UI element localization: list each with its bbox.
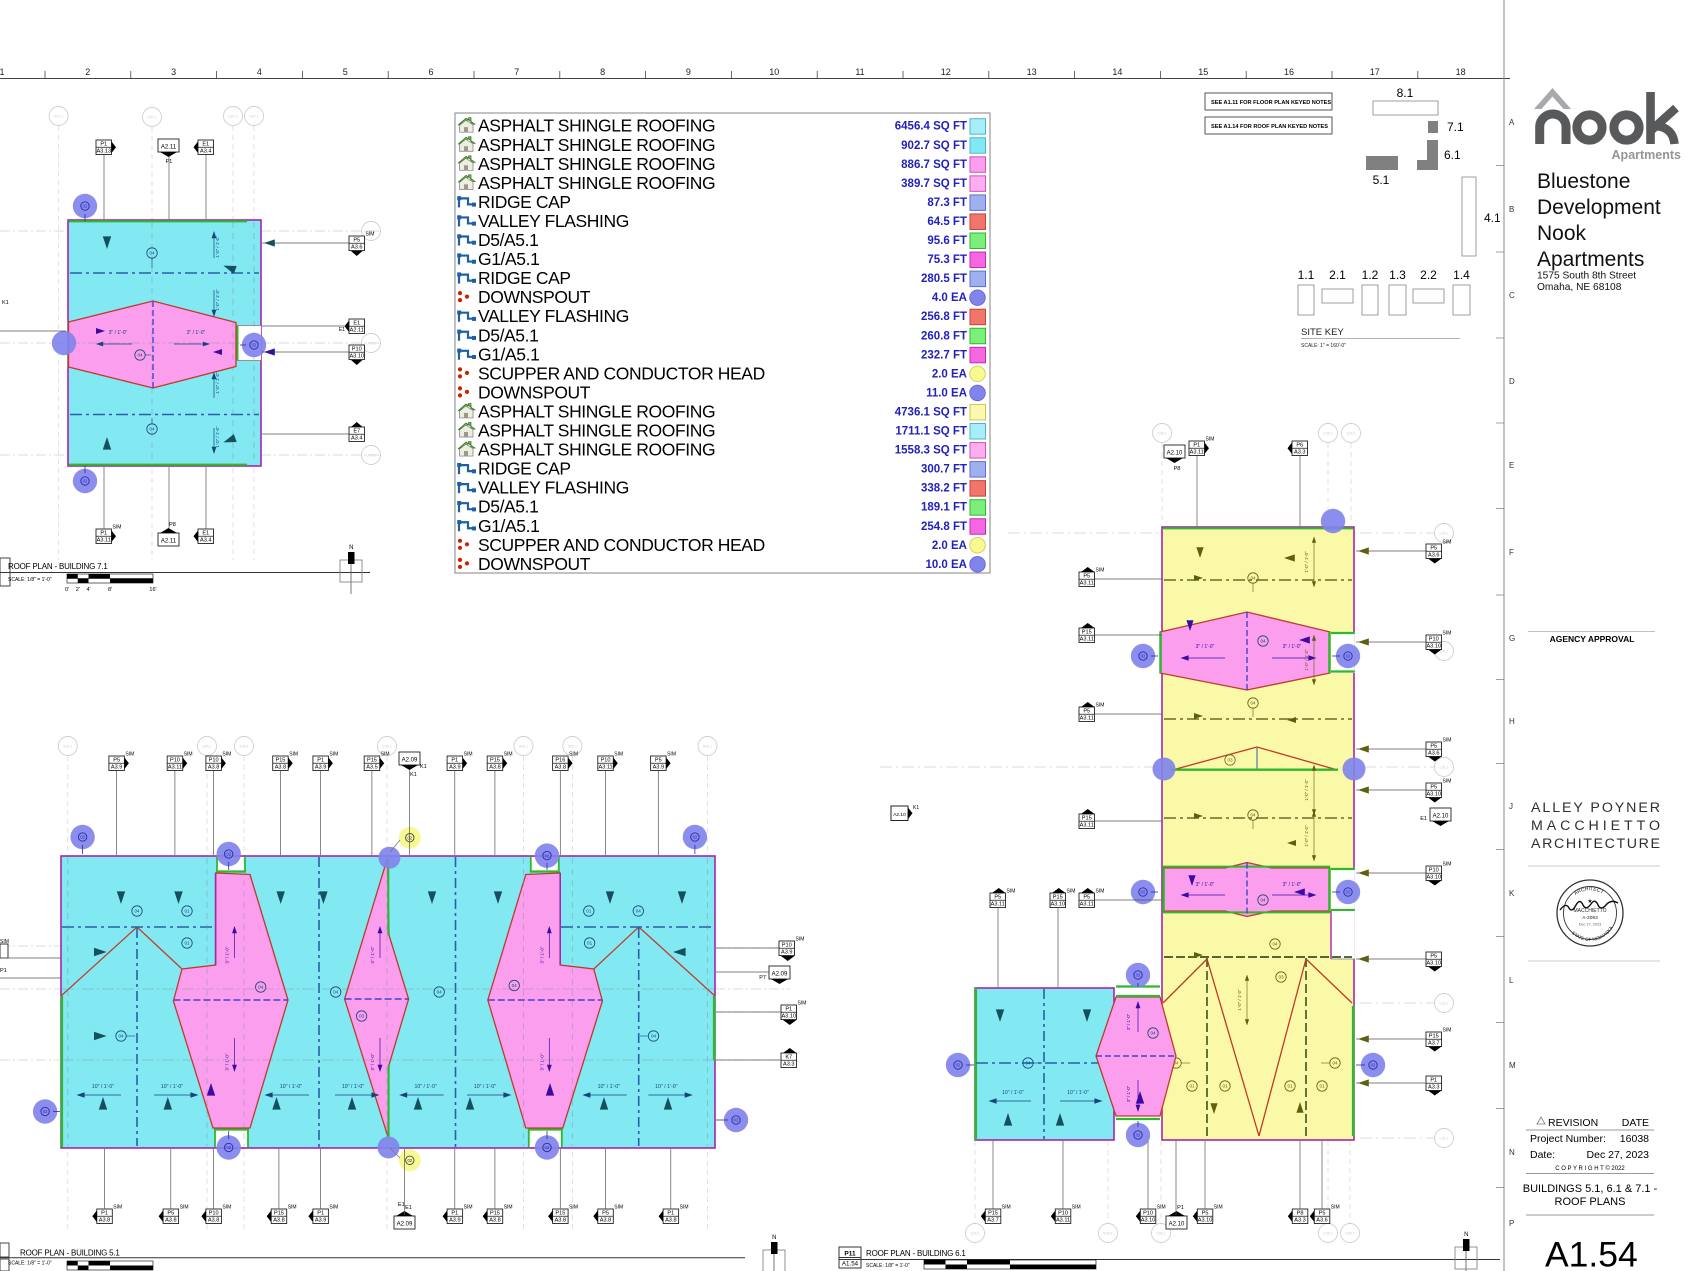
svg-text:1575 South 8th Street: 1575 South 8th Street	[1537, 271, 1636, 282]
svg-text:P15: P15	[1082, 630, 1092, 636]
svg-text:A3.9: A3.9	[449, 765, 461, 771]
svg-text:SCUPPER AND CONDUCTOR HEAD: SCUPPER AND CONDUCTOR HEAD	[478, 535, 765, 555]
svg-text:64.5 FT: 64.5 FT	[927, 216, 967, 228]
svg-text:1.3: 1.3	[1389, 268, 1406, 282]
svg-text:01: 01	[1189, 1084, 1195, 1089]
svg-text:N: N	[1509, 1148, 1515, 1157]
svg-text:A3.7: A3.7	[987, 1218, 999, 1224]
svg-text:SIM: SIM	[667, 752, 676, 758]
svg-text:S05.1: S05.1	[382, 745, 391, 749]
svg-text:S06.1: S06.1	[1103, 1232, 1112, 1236]
svg-text:1'-0" / 1'-0": 1'-0" / 1'-0"	[215, 289, 220, 311]
svg-text:260.8 FT: 260.8 FT	[921, 330, 967, 342]
svg-text:A3.3: A3.3	[1428, 1085, 1440, 1091]
svg-text:K1: K1	[420, 764, 427, 770]
svg-text:8': 8'	[108, 587, 112, 593]
svg-text:SIM: SIM	[1096, 568, 1105, 574]
svg-text:P5: P5	[1083, 574, 1090, 580]
svg-text:D: D	[1509, 377, 1515, 386]
svg-text:S06.1: S06.1	[1345, 1232, 1354, 1236]
svg-text:A3.4: A3.4	[200, 538, 212, 544]
svg-text:P5: P5	[1083, 709, 1090, 715]
svg-text:A2.11: A2.11	[161, 539, 177, 545]
svg-text:A2.09: A2.09	[772, 972, 788, 978]
svg-text:A1.54: A1.54	[1545, 1235, 1638, 1271]
svg-text:75.3 FT: 75.3 FT	[927, 254, 967, 266]
svg-text:A3.7: A3.7	[1428, 1041, 1440, 1047]
svg-text:SIM: SIM	[1002, 1205, 1011, 1211]
svg-text:K1: K1	[913, 805, 919, 811]
svg-text:REVISION: REVISION	[1548, 1117, 1598, 1129]
svg-text:A3.5: A3.5	[366, 765, 378, 771]
svg-text:A3.10: A3.10	[1050, 902, 1065, 908]
svg-text:01: 01	[586, 909, 592, 914]
svg-text:P15: P15	[490, 758, 500, 764]
svg-text:SIM: SIM	[464, 1205, 473, 1211]
svg-text:01: 01	[1222, 1084, 1228, 1089]
svg-text:A3.10: A3.10	[1426, 792, 1441, 798]
svg-text:P10: P10	[1143, 1211, 1153, 1217]
svg-text:300.7 FT: 300.7 FT	[921, 464, 967, 476]
svg-text:10" / 1'-0": 10" / 1'-0"	[414, 1084, 436, 1090]
svg-text:A3.11: A3.11	[598, 765, 612, 771]
svg-text:17: 17	[1370, 67, 1380, 77]
svg-text:P15: P15	[1082, 816, 1092, 822]
svg-text:P5: P5	[1430, 546, 1437, 552]
svg-text:3" / 1'-0": 3" / 1'-0"	[187, 330, 206, 336]
svg-text:03: 03	[1278, 975, 1284, 980]
svg-text:SIM: SIM	[464, 752, 473, 758]
svg-text:S05.1: S05.1	[63, 745, 72, 749]
svg-text:U07.1: U07.1	[366, 342, 376, 346]
svg-text:S06.1: S06.1	[1323, 1232, 1332, 1236]
svg-text:SIM: SIM	[1443, 738, 1452, 744]
svg-text:04: 04	[258, 985, 264, 990]
svg-text:A3.9: A3.9	[653, 765, 665, 771]
svg-text:3" / 1'-0": 3" / 1'-0"	[109, 330, 128, 336]
svg-text:A3.10: A3.10	[349, 354, 364, 360]
svg-text:87.3 FT: 87.3 FT	[927, 197, 967, 209]
svg-text:02: 02	[1141, 890, 1146, 895]
svg-text:02: 02	[1371, 1063, 1376, 1068]
svg-text:SIM: SIM	[288, 1205, 297, 1211]
svg-text:U07.1: U07.1	[366, 454, 376, 458]
svg-text:04: 04	[333, 990, 339, 995]
svg-text:D5/A5.1: D5/A5.1	[478, 325, 538, 345]
svg-text:P8: P8	[1297, 1211, 1304, 1217]
svg-text:SITE KEY: SITE KEY	[1301, 327, 1344, 338]
svg-text:5.1: 5.1	[1373, 173, 1390, 187]
svg-text:04: 04	[1260, 639, 1266, 644]
svg-text:1'-0" / 1'-0": 1'-0" / 1'-0"	[215, 236, 220, 258]
svg-text:Apartments: Apartments	[1537, 248, 1644, 271]
svg-text:ASPHALT SHINGLE ROOFING: ASPHALT SHINGLE ROOFING	[478, 154, 715, 174]
svg-text:K7: K7	[785, 1055, 792, 1061]
svg-text:SIM: SIM	[1096, 703, 1105, 709]
svg-text:10" / 1'-0": 10" / 1'-0"	[92, 1084, 114, 1090]
svg-text:10" / 1'-0": 10" / 1'-0"	[474, 1084, 496, 1090]
svg-text:P5: P5	[167, 1211, 174, 1217]
svg-text:04: 04	[437, 990, 443, 995]
svg-text:A3.9: A3.9	[315, 765, 327, 771]
svg-text:P5: P5	[113, 758, 120, 764]
svg-text:BUILDINGS 5.1, 6.1 & 7.1 -: BUILDINGS 5.1, 6.1 & 7.1 -	[1523, 1183, 1658, 1195]
svg-text:04: 04	[651, 1034, 657, 1039]
svg-text:S05.1: S05.1	[519, 745, 528, 749]
svg-text:RIDGE CAP: RIDGE CAP	[478, 268, 571, 288]
svg-text:SIM: SIM	[614, 1205, 623, 1211]
svg-text:P16: P16	[555, 758, 565, 764]
svg-text:Development: Development	[1537, 196, 1661, 219]
svg-text:SIM: SIM	[1007, 889, 1016, 895]
svg-text:P10: P10	[209, 1211, 219, 1217]
svg-text:SIM: SIM	[113, 1205, 122, 1211]
svg-text:N: N	[349, 545, 353, 551]
svg-text:P5: P5	[602, 1211, 609, 1217]
svg-text:01: 01	[587, 941, 593, 946]
svg-text:3" / 1'-0": 3" / 1'-0"	[1196, 882, 1215, 888]
svg-text:3" / 1'-0": 3" / 1'-0"	[1283, 882, 1302, 888]
svg-text:ROOF PLAN - BUILDING 7.1: ROOF PLAN - BUILDING 7.1	[8, 562, 108, 571]
svg-text:P1: P1	[100, 142, 107, 148]
svg-text:02: 02	[1141, 654, 1146, 659]
svg-text:04: 04	[1250, 813, 1256, 818]
svg-text:SIM: SIM	[180, 1205, 189, 1211]
svg-text:03: 03	[359, 1014, 365, 1019]
svg-text:8.1: 8.1	[1397, 86, 1414, 100]
svg-text:02: 02	[545, 853, 550, 858]
svg-text:P15: P15	[988, 1211, 998, 1217]
svg-text:S05.1: S05.1	[202, 745, 211, 749]
svg-text:P5: P5	[655, 758, 662, 764]
svg-text:3" / 1'-0": 3" / 1'-0"	[539, 946, 544, 964]
svg-text:7: 7	[514, 67, 519, 77]
svg-text:ASPHALT SHINGLE ROOFING: ASPHALT SHINGLE ROOFING	[478, 135, 715, 155]
svg-text:01: 01	[1319, 1084, 1325, 1089]
svg-text:04: 04	[636, 909, 642, 914]
svg-text:15: 15	[1198, 67, 1208, 77]
svg-text:A2.10: A2.10	[893, 812, 906, 818]
svg-text:S05.1: S05.1	[703, 745, 712, 749]
svg-text:1558.3 SQ FT: 1558.3 SQ FT	[895, 445, 967, 457]
svg-text:6456.4 SQ FT: 6456.4 SQ FT	[895, 121, 967, 133]
svg-text:SCALE: 1/8" = 1'-0": SCALE: 1/8" = 1'-0"	[866, 1263, 910, 1269]
svg-text:P10: P10	[601, 758, 611, 764]
svg-text:A3.11: A3.11	[1190, 450, 1204, 456]
svg-text:P1: P1	[1430, 1078, 1437, 1084]
svg-text:02: 02	[226, 852, 231, 857]
svg-text:SIM: SIM	[113, 525, 122, 531]
svg-text:N: N	[1464, 1232, 1468, 1238]
svg-text:S07.1: S07.1	[228, 115, 237, 119]
svg-text:A2.09: A2.09	[397, 1222, 413, 1228]
svg-text:A3.11: A3.11	[1080, 823, 1094, 829]
svg-text:SIM: SIM	[504, 1205, 513, 1211]
svg-text:A3.11: A3.11	[1056, 1218, 1070, 1224]
svg-text:N: N	[772, 1235, 776, 1241]
svg-text:Apartments: Apartments	[1612, 148, 1682, 162]
svg-text:4.0 EA: 4.0 EA	[932, 292, 967, 304]
svg-text:1'-0" / 1'-0": 1'-0" / 1'-0"	[1304, 779, 1309, 801]
svg-text:A3.11: A3.11	[1080, 581, 1094, 587]
svg-text:P1: P1	[317, 1211, 324, 1217]
svg-text:04: 04	[149, 251, 155, 256]
svg-text:12: 12	[941, 67, 951, 77]
svg-text:SIM: SIM	[680, 1205, 689, 1211]
svg-text:ARCHITECTURE: ARCHITECTURE	[1531, 836, 1660, 852]
svg-text:P5: P5	[353, 238, 360, 244]
svg-text:A3.11: A3.11	[1080, 637, 1094, 643]
svg-text:A3.10: A3.10	[1426, 644, 1441, 650]
svg-text:10: 10	[769, 67, 779, 77]
svg-text:SIM: SIM	[796, 937, 805, 943]
svg-text:10.0 EA: 10.0 EA	[925, 559, 967, 571]
svg-text:S07.1: S07.1	[54, 115, 63, 119]
svg-text:P1: P1	[1177, 1205, 1184, 1211]
svg-text:A3.8: A3.8	[275, 765, 287, 771]
svg-text:S06.1: S06.1	[1346, 432, 1355, 436]
svg-text:A3.8: A3.8	[273, 1218, 285, 1224]
svg-text:P8: P8	[1174, 466, 1181, 472]
svg-text:886.7 SQ FT: 886.7 SQ FT	[901, 159, 967, 171]
svg-text:A3.8: A3.8	[600, 1218, 612, 1224]
svg-text:P10: P10	[209, 758, 219, 764]
svg-text:P15: P15	[275, 758, 285, 764]
svg-text:H: H	[1509, 717, 1515, 726]
svg-text:1'-0" / 1'-0": 1'-0" / 1'-0"	[215, 426, 220, 448]
svg-text:A2.11: A2.11	[161, 145, 177, 151]
svg-text:C O P Y R I G H T © 2022: C O P Y R I G H T © 2022	[1555, 1165, 1625, 1172]
svg-text:02: 02	[83, 479, 88, 484]
svg-text:A3.9: A3.9	[315, 1218, 327, 1224]
svg-text:SIM: SIM	[289, 752, 298, 758]
svg-text:04: 04	[512, 983, 518, 988]
svg-text:SEE A1.14 FOR ROOF PLAN KEYED: SEE A1.14 FOR ROOF PLAN KEYED NOTES	[1211, 124, 1328, 130]
svg-text:02: 02	[43, 1109, 48, 1114]
svg-text:SCALE: 1/8" = 1'-0": SCALE: 1/8" = 1'-0"	[8, 577, 52, 583]
svg-text:A3.6: A3.6	[1428, 553, 1440, 559]
svg-text:SIM: SIM	[1443, 1028, 1452, 1034]
svg-text:3" / 1'-0": 3" / 1'-0"	[370, 1053, 375, 1071]
svg-text:01: 01	[184, 909, 190, 914]
svg-text:04: 04	[1272, 942, 1278, 947]
svg-text:P15: P15	[1429, 1034, 1439, 1040]
svg-text:G: G	[1509, 634, 1515, 643]
svg-text:1: 1	[0, 67, 5, 77]
svg-text:A3.9: A3.9	[449, 1218, 461, 1224]
svg-text:13: 13	[1027, 67, 1037, 77]
svg-text:P10: P10	[1429, 868, 1439, 874]
svg-text:E7: E7	[353, 429, 360, 435]
svg-text:A3.3: A3.3	[1294, 450, 1306, 456]
svg-text:10" / 1'-0": 10" / 1'-0"	[1002, 1090, 1024, 1096]
svg-text:AGENCY APPROVAL: AGENCY APPROVAL	[1550, 634, 1635, 644]
svg-text:1'-0" / 1'-0": 1'-0" / 1'-0"	[1304, 551, 1309, 573]
svg-text:3" / 1'-0": 3" / 1'-0"	[370, 946, 375, 964]
svg-text:VALLEY FLASHING: VALLEY FLASHING	[478, 211, 629, 231]
svg-text:SCUPPER AND CONDUCTOR HEAD: SCUPPER AND CONDUCTOR HEAD	[478, 363, 765, 383]
svg-text:02: 02	[734, 1118, 739, 1123]
svg-text:DOWNSPOUT: DOWNSPOUT	[478, 382, 591, 402]
svg-text:A3.8: A3.8	[165, 1218, 177, 1224]
svg-text:02: 02	[407, 1158, 412, 1163]
svg-text:SIM: SIM	[504, 752, 513, 758]
svg-text:P15: P15	[1053, 895, 1063, 901]
svg-text:2.0 EA: 2.0 EA	[932, 540, 967, 552]
svg-text:2.0 EA: 2.0 EA	[932, 368, 967, 380]
svg-text:SIM: SIM	[1443, 631, 1452, 637]
svg-text:S06.1: S06.1	[1156, 1232, 1165, 1236]
svg-text:L06.1: L06.1	[1440, 766, 1449, 770]
svg-text:10" / 1'-0": 10" / 1'-0"	[280, 1084, 302, 1090]
svg-text:6.1: 6.1	[1444, 148, 1461, 162]
svg-text:G1/A5.1: G1/A5.1	[478, 249, 539, 269]
svg-text:389.7 SQ FT: 389.7 SQ FT	[901, 178, 967, 190]
svg-text:S06.1: S06.1	[970, 1232, 979, 1236]
svg-text:P1: P1	[1193, 443, 1200, 449]
svg-text:S05.1: S05.1	[239, 745, 248, 749]
svg-text:SIM: SIM	[798, 1001, 807, 1007]
svg-text:P5: P5	[1430, 785, 1437, 791]
svg-text:P5: P5	[1083, 895, 1090, 901]
svg-text:P11: P11	[844, 1251, 856, 1258]
svg-text:P5: P5	[1319, 1211, 1326, 1217]
svg-text:04: 04	[1332, 1061, 1338, 1066]
svg-text:280.5 FT: 280.5 FT	[921, 273, 967, 285]
svg-text:01: 01	[1287, 1084, 1293, 1089]
svg-text:P10: P10	[170, 758, 180, 764]
svg-text:04: 04	[1025, 1061, 1031, 1066]
svg-text:SIM: SIM	[222, 752, 231, 758]
svg-text:A2.09: A2.09	[402, 758, 418, 764]
svg-text:ROOF PLAN - BUILDING 5.1: ROOF PLAN - BUILDING 5.1	[20, 1249, 120, 1258]
svg-text:S05.1: S05.1	[568, 745, 577, 749]
svg-text:11: 11	[855, 67, 864, 77]
svg-text:3" / 1'-0": 3" / 1'-0"	[1283, 644, 1302, 650]
svg-text:SIM: SIM	[569, 752, 578, 758]
svg-text:SIM: SIM	[1067, 889, 1076, 895]
svg-text:01: 01	[184, 941, 190, 946]
svg-text:02: 02	[1136, 973, 1141, 978]
svg-text:D5/A5.1: D5/A5.1	[478, 230, 538, 250]
svg-text:2: 2	[85, 67, 90, 77]
svg-text:DOWNSPOUT: DOWNSPOUT	[478, 554, 591, 574]
svg-text:189.1 FT: 189.1 FT	[921, 502, 967, 514]
svg-text:SIM: SIM	[614, 752, 623, 758]
svg-text:2.2: 2.2	[1420, 268, 1437, 282]
svg-text:L: L	[1509, 976, 1514, 985]
svg-text:3" / 1'-0": 3" / 1'-0"	[1196, 644, 1215, 650]
svg-text:SIM: SIM	[1157, 1205, 1166, 1211]
svg-text:A3.8: A3.8	[208, 765, 220, 771]
svg-text:10" / 1'-0": 10" / 1'-0"	[161, 1084, 183, 1090]
svg-text:J: J	[1509, 802, 1513, 811]
svg-text:Dec 27, 2023: Dec 27, 2023	[1587, 1149, 1650, 1161]
svg-text:16: 16	[1284, 67, 1294, 77]
svg-text:P5: P5	[1430, 954, 1437, 960]
svg-text:A3.3: A3.3	[1294, 1218, 1306, 1224]
svg-text:A3.6: A3.6	[1316, 1218, 1328, 1224]
svg-text:P5: P5	[1430, 744, 1437, 750]
svg-text:L06.1: L06.1	[1440, 532, 1449, 536]
svg-text:C: C	[1509, 291, 1515, 300]
svg-text:SEE A1.11 FOR FLOOR PLAN KEYED: SEE A1.11 FOR FLOOR PLAN KEYED NOTES	[1211, 100, 1331, 106]
svg-text:A3.8: A3.8	[489, 765, 501, 771]
svg-text:5: 5	[343, 67, 348, 77]
svg-text:A3.6: A3.6	[1428, 751, 1440, 757]
svg-text:ASPHALT SHINGLE ROOFING: ASPHALT SHINGLE ROOFING	[478, 421, 715, 441]
svg-text:0': 0'	[65, 587, 69, 593]
svg-text:L06.1: L06.1	[1440, 650, 1449, 654]
svg-text:A3.4: A3.4	[351, 436, 363, 442]
svg-text:DOWNSPOUT: DOWNSPOUT	[478, 287, 591, 307]
svg-text:SIM: SIM	[184, 752, 193, 758]
svg-text:L06.1: L06.1	[1440, 1002, 1449, 1006]
svg-text:14: 14	[1112, 67, 1122, 77]
svg-text:3" / 1'-0": 3" / 1'-0"	[225, 946, 230, 964]
svg-text:10" / 1'-0": 10" / 1'-0"	[655, 1084, 677, 1090]
svg-text:RIDGE CAP: RIDGE CAP	[478, 459, 571, 479]
svg-text:04: 04	[1250, 576, 1256, 581]
svg-text:02: 02	[1346, 890, 1351, 895]
svg-text:P5: P5	[994, 895, 1001, 901]
svg-text:4.1: 4.1	[1484, 211, 1501, 225]
svg-text:A: A	[1509, 118, 1515, 127]
svg-text:A3.8: A3.8	[208, 1218, 220, 1224]
svg-text:2.1: 2.1	[1329, 268, 1346, 282]
svg-text:Project Number:: Project Number:	[1530, 1133, 1606, 1145]
svg-text:SIM: SIM	[1206, 437, 1215, 443]
svg-text:A3.6: A3.6	[351, 245, 363, 251]
svg-text:SIM: SIM	[1443, 862, 1452, 868]
svg-text:P15: P15	[490, 1211, 500, 1217]
svg-text:Nook: Nook	[1537, 222, 1587, 245]
svg-text:ROOF PLANS: ROOF PLANS	[1555, 1196, 1626, 1208]
svg-text:A3.4: A3.4	[200, 149, 212, 155]
svg-text:P6: P6	[1296, 443, 1303, 449]
svg-text:ASPHALT SHINGLE ROOFING: ASPHALT SHINGLE ROOFING	[478, 440, 715, 460]
svg-text:P10: P10	[1429, 637, 1439, 643]
svg-text:★: ★	[1587, 898, 1592, 905]
svg-text:A3.8: A3.8	[555, 765, 567, 771]
svg-text:P10: P10	[1058, 1211, 1068, 1217]
svg-text:3" / 1'-0": 3" / 1'-0"	[1126, 1085, 1131, 1102]
svg-text:DATE: DATE	[1622, 1117, 1649, 1129]
svg-text:SIM: SIM	[222, 1205, 231, 1211]
svg-text:K1: K1	[410, 772, 417, 778]
svg-text:A3.11: A3.11	[1080, 902, 1094, 908]
svg-text:3" / 1'-0": 3" / 1'-0"	[225, 1053, 230, 1071]
svg-text:G1/A5.1: G1/A5.1	[478, 344, 539, 364]
svg-text:02: 02	[83, 204, 88, 209]
svg-text:VALLEY FLASHING: VALLEY FLASHING	[478, 306, 629, 326]
svg-text:04: 04	[1260, 898, 1266, 903]
svg-text:SIM: SIM	[366, 232, 375, 238]
svg-text:10" / 1'-0": 10" / 1'-0"	[342, 1084, 364, 1090]
svg-text:02: 02	[226, 1145, 231, 1150]
svg-text:K: K	[1509, 889, 1515, 898]
svg-text:A2.11: A2.11	[350, 328, 364, 334]
svg-text:VALLEY FLASHING: VALLEY FLASHING	[478, 478, 629, 498]
svg-text:1711.1 SQ FT: 1711.1 SQ FT	[895, 426, 967, 438]
svg-text:E1: E1	[1420, 816, 1427, 822]
svg-text:P1: P1	[101, 1211, 108, 1217]
svg-text:P1: P1	[451, 1211, 458, 1217]
svg-text:P8: P8	[169, 522, 176, 528]
svg-text:02: 02	[956, 1063, 961, 1068]
svg-text:S06.1: S06.1	[1323, 432, 1332, 436]
svg-text:P1: P1	[667, 1211, 674, 1217]
